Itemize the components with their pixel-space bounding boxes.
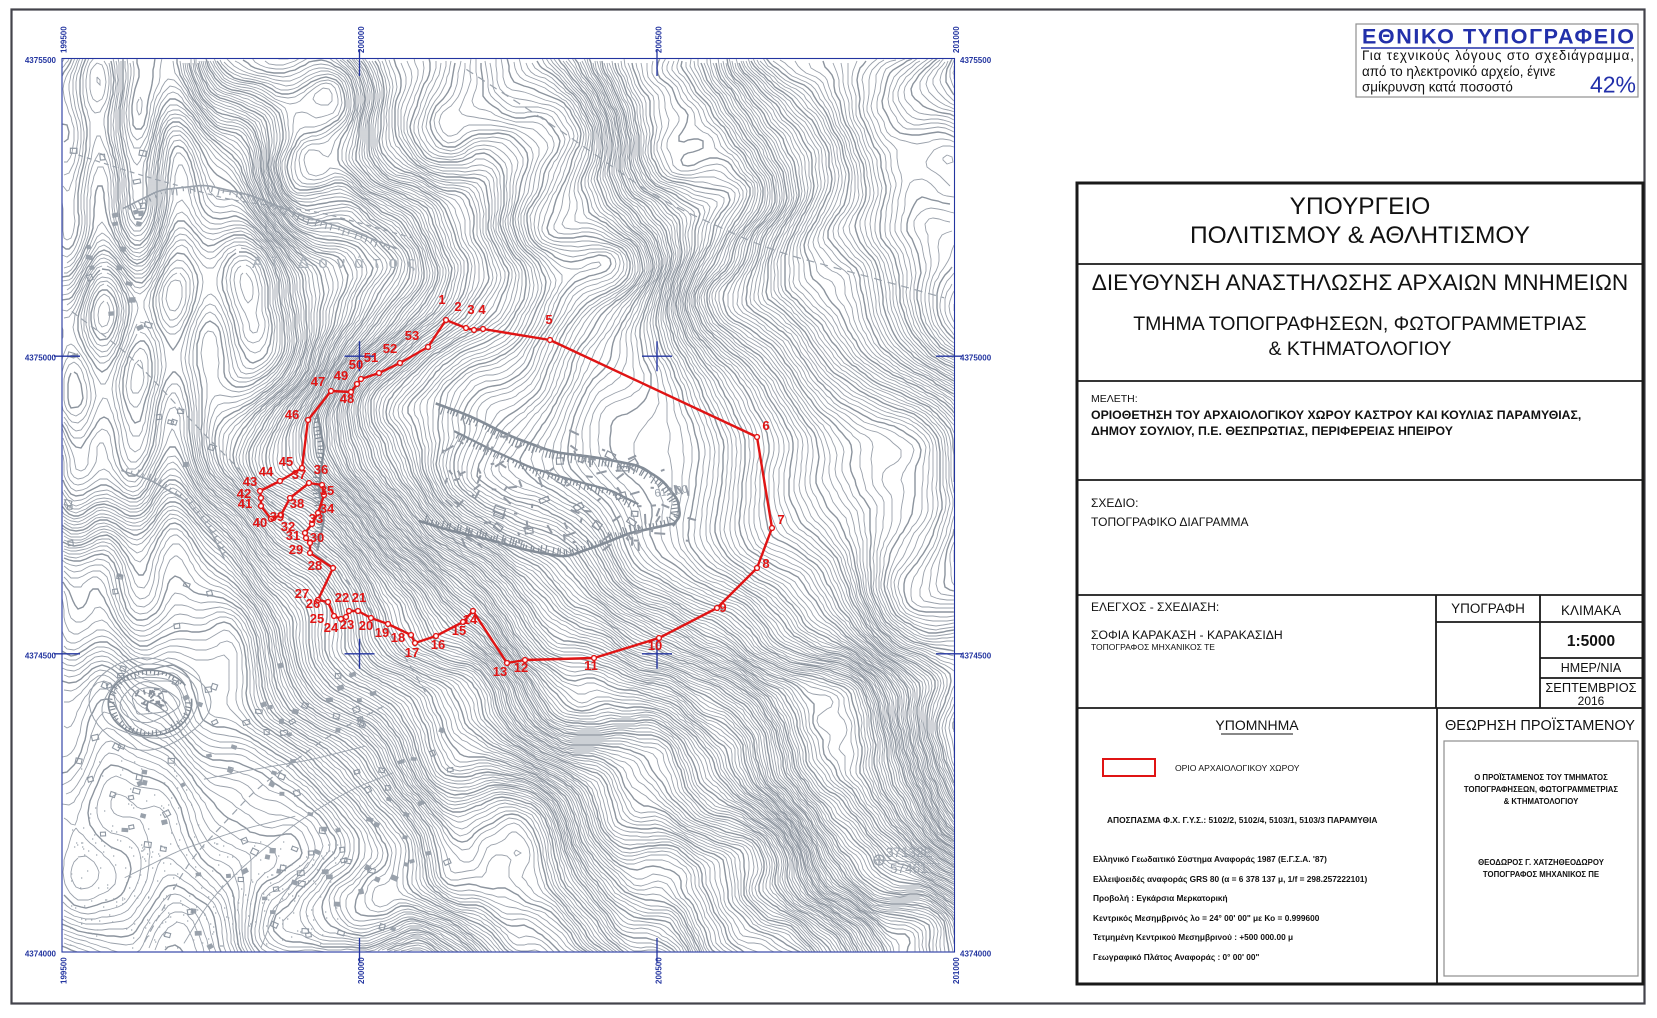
svg-text:1:5000: 1:5000	[1567, 633, 1615, 650]
svg-text:ΕΘΝΙΚΟ ΤΥΠΟΓΡΑΦΕΙΟ: ΕΘΝΙΚΟ ΤΥΠΟΓΡΑΦΕΙΟ	[1362, 25, 1634, 49]
svg-text:19: 19	[375, 625, 389, 640]
svg-text:ΜΕΛΕΤΗ:: ΜΕΛΕΤΗ:	[1091, 393, 1138, 405]
svg-text:36: 36	[314, 462, 328, 477]
svg-text:ΤΟΠΟΓΡΑΦΙΚΟ ΔΙΑΓΡΑΜΜΑ: ΤΟΠΟΓΡΑΦΙΚΟ ΔΙΑΓΡΑΜΜΑ	[1091, 515, 1248, 529]
svg-text:43: 43	[243, 474, 257, 489]
svg-text:ΤΟΠΟΓΡΑΦΗΣΕΩΝ, ΦΩΤΟΓΡΑΜΜΕΤΡΙΑΣ: ΤΟΠΟΓΡΑΦΗΣΕΩΝ, ΦΩΤΟΓΡΑΜΜΕΤΡΙΑΣ	[1464, 785, 1618, 794]
svg-text:Κεντρικός Μεσημβρινός λο = 24°: Κεντρικός Μεσημβρινός λο = 24° 00' 00" μ…	[1093, 913, 1320, 923]
svg-text:Ελλειψοειδές αναφοράς GRS 80 (: Ελλειψοειδές αναφοράς GRS 80 (α = 6 378 …	[1093, 874, 1367, 884]
svg-text:ΤΟΠΟΓΡΑΦΟΣ ΜΗΧΑΝΙΚΟΣ ΠΕ: ΤΟΠΟΓΡΑΦΟΣ ΜΗΧΑΝΙΚΟΣ ΠΕ	[1483, 870, 1599, 879]
svg-text:29: 29	[289, 542, 303, 557]
svg-text:40: 40	[253, 515, 267, 530]
svg-text:4374000: 4374000	[960, 950, 992, 959]
svg-text:ΔΗΜΟΥ ΣΟΥΛΙΟΥ, Π.Ε. ΘΕΣΠΡΩΤΙΑΣ: ΔΗΜΟΥ ΣΟΥΛΙΟΥ, Π.Ε. ΘΕΣΠΡΩΤΙΑΣ, ΠΕΡΙΦΕΡΕ…	[1091, 424, 1453, 438]
svg-text:199500: 199500	[60, 26, 69, 53]
svg-text:ΤΟΠΟΓΡΑΦΟΣ ΜΗΧΑΝΙΚΟΣ ΤΕ: ΤΟΠΟΓΡΑΦΟΣ ΜΗΧΑΝΙΚΟΣ ΤΕ	[1091, 642, 1215, 652]
svg-text:9: 9	[719, 600, 726, 615]
svg-text:Γεωγραφικό Πλάτος Αναφοράς : 0: Γεωγραφικό Πλάτος Αναφοράς : 0° 00' 00"	[1093, 952, 1259, 962]
svg-text:ΥΠΟΜΝΗΜΑ: ΥΠΟΜΝΗΜΑ	[1215, 717, 1299, 733]
svg-text:20: 20	[359, 618, 373, 633]
svg-text:ΟΡΙΟΘΕΤΗΣΗ ΤΟΥ ΑΡΧΑΙΟΛΟΓΙΚΟΥ Χ: ΟΡΙΟΘΕΤΗΣΗ ΤΟΥ ΑΡΧΑΙΟΛΟΓΙΚΟΥ ΧΩΡΟΥ ΚΑΣΤΡ…	[1091, 408, 1581, 422]
svg-text:4: 4	[478, 302, 486, 317]
svg-text:35: 35	[320, 483, 334, 498]
svg-text:11: 11	[584, 658, 598, 673]
svg-text:38: 38	[290, 496, 304, 511]
svg-text:4374000: 4374000	[25, 950, 57, 959]
svg-text:17: 17	[405, 645, 419, 660]
svg-text:ΘΕΟΔΩΡΟΣ Γ. ΧΑΤΖΗΘΕΟΔΩΡΟΥ: ΘΕΟΔΩΡΟΣ Γ. ΧΑΤΖΗΘΕΟΔΩΡΟΥ	[1478, 858, 1605, 867]
svg-text:4375000: 4375000	[960, 354, 992, 363]
svg-text:200000: 200000	[357, 26, 366, 53]
svg-text:39: 39	[270, 509, 284, 524]
svg-text:57461: 57461	[890, 861, 928, 876]
svg-text:48: 48	[340, 391, 354, 406]
svg-text:ΣΧΕΔΙΟ:: ΣΧΕΔΙΟ:	[1091, 496, 1138, 510]
svg-text:& ΚΤΗΜΑΤΟΛΟΓΙΟΥ: & ΚΤΗΜΑΤΟΛΟΓΙΟΥ	[1504, 797, 1580, 806]
svg-text:30: 30	[310, 530, 324, 545]
svg-text:200500: 200500	[655, 957, 664, 984]
svg-text:6: 6	[762, 418, 769, 433]
svg-text:46: 46	[285, 407, 299, 422]
svg-text:Ελληνικό Γεωδαιτικό Σύστημα Αν: Ελληνικό Γεωδαιτικό Σύστημα Αναφοράς 198…	[1093, 854, 1327, 864]
svg-text:1: 1	[438, 292, 445, 307]
svg-text:3: 3	[467, 302, 474, 317]
svg-text:ΘΕΩΡΗΣΗ ΠΡΟΪΣΤΑΜΕΝΟΥ: ΘΕΩΡΗΣΗ ΠΡΟΪΣΤΑΜΕΝΟΥ	[1445, 717, 1635, 734]
svg-text:52: 52	[383, 341, 397, 356]
svg-text:ΚΛΙΜΑΚΑ: ΚΛΙΜΑΚΑ	[1561, 603, 1621, 618]
svg-text:27: 27	[295, 586, 309, 601]
svg-text:4375000: 4375000	[25, 354, 57, 363]
svg-text:2: 2	[454, 299, 461, 314]
svg-text:ΥΠΟΓΡΑΦΗ: ΥΠΟΓΡΑΦΗ	[1451, 601, 1525, 616]
svg-text:2016: 2016	[1578, 694, 1605, 708]
svg-text:23: 23	[340, 617, 354, 632]
svg-text:Αϊ Δονάτος: Αϊ Δονάτος	[252, 253, 424, 272]
svg-text:ΗΜΕΡ/ΝΙΑ: ΗΜΕΡ/ΝΙΑ	[1561, 661, 1622, 675]
svg-text:8: 8	[762, 556, 769, 571]
svg-text:4375500: 4375500	[960, 56, 992, 65]
svg-text:13: 13	[493, 664, 507, 679]
svg-text:ΣΟΦΙΑ ΚΑΡΑΚΑΣΗ - ΚΑΡΑΚΑΣΙΔΗ: ΣΟΦΙΑ ΚΑΡΑΚΑΣΗ - ΚΑΡΑΚΑΣΙΔΗ	[1091, 628, 1283, 642]
svg-text:28: 28	[308, 558, 322, 573]
svg-text:4374500: 4374500	[960, 651, 992, 660]
svg-text:ΠΟΛΙΤΙΣΜΟΥ & ΑΘΛΗΤΙΣΜΟΥ: ΠΟΛΙΤΙΣΜΟΥ & ΑΘΛΗΤΙΣΜΟΥ	[1190, 222, 1530, 249]
svg-text:47: 47	[311, 374, 325, 389]
svg-text:200000: 200000	[357, 957, 366, 984]
svg-text:45: 45	[279, 454, 293, 469]
svg-text:199500: 199500	[60, 957, 69, 984]
svg-text:σμίκρυνση κατά ποσοστό: σμίκρυνση κατά ποσοστό	[1362, 80, 1513, 95]
svg-text:42%: 42%	[1590, 72, 1636, 98]
svg-text:ΣΕΠΤΕΜΒΡΙΟΣ: ΣΕΠΤΕΜΒΡΙΟΣ	[1545, 680, 1636, 695]
svg-text:ΤΜΗΜΑ ΤΟΠΟΓΡΑΦΗΣΕΩΝ, ΦΩΤΟΓΡΑΜΜ: ΤΜΗΜΑ ΤΟΠΟΓΡΑΦΗΣΕΩΝ, ΦΩΤΟΓΡΑΜΜΕΤΡΙΑΣ	[1133, 313, 1586, 335]
svg-text:18: 18	[391, 630, 405, 645]
svg-text:50: 50	[349, 357, 363, 372]
svg-text:Για τεχνικούς λόγους στο σχεδι: Για τεχνικούς λόγους στο σχεδιάγραμμα,	[1362, 48, 1634, 63]
svg-text:24: 24	[324, 620, 339, 635]
svg-text:ΥΠΟΥΡΓΕΙΟ: ΥΠΟΥΡΓΕΙΟ	[1290, 193, 1431, 220]
svg-text:12: 12	[514, 660, 528, 675]
svg-text:25: 25	[310, 611, 324, 626]
svg-text:4375500: 4375500	[25, 56, 57, 65]
svg-text:7: 7	[777, 512, 784, 527]
svg-text:& ΚΤΗΜΑΤΟΛΟΓΙΟΥ: & ΚΤΗΜΑΤΟΛΟΓΙΟΥ	[1268, 338, 1451, 360]
svg-text:53: 53	[405, 328, 419, 343]
svg-text:ΑΠΟΣΠΑΣΜΑ Φ.Χ. Γ.Υ.Σ.: 5102/2: ΑΠΟΣΠΑΣΜΑ Φ.Χ. Γ.Υ.Σ.: 5102/2, 5102/4, 5…	[1107, 815, 1377, 825]
svg-text:ΔΙΕΥΘΥΝΣΗ ΑΝΑΣΤΗΛΩΣΗΣ ΑΡΧΑΙΩΝ: ΔΙΕΥΘΥΝΣΗ ΑΝΑΣΤΗΛΩΣΗΣ ΑΡΧΑΙΩΝ ΜΝΗΜΕΙΩΝ	[1092, 270, 1628, 295]
svg-text:201000: 201000	[952, 957, 961, 984]
svg-text:4374500: 4374500	[25, 651, 57, 660]
svg-text:201000: 201000	[952, 26, 961, 53]
svg-text:ΕΛΕΓΧΟΣ - ΣΧΕΔΙΑΣΗ:: ΕΛΕΓΧΟΣ - ΣΧΕΔΙΑΣΗ:	[1091, 600, 1219, 614]
svg-text:51: 51	[364, 350, 378, 365]
svg-text:37: 37	[292, 467, 306, 482]
svg-text:44: 44	[259, 464, 274, 479]
svg-text:200500: 200500	[655, 26, 664, 53]
svg-text:ΟΡΙΟ ΑΡΧΑΙΟΛΟΓΙΚΟΥ ΧΩΡΟΥ: ΟΡΙΟ ΑΡΧΑΙΟΛΟΓΙΚΟΥ ΧΩΡΟΥ	[1175, 763, 1300, 773]
svg-text:10: 10	[648, 638, 662, 653]
svg-text:Τετμημένη Κεντρικού Μεσημβρινο: Τετμημένη Κεντρικού Μεσημβρινού : +500 0…	[1093, 932, 1293, 942]
svg-text:49: 49	[334, 368, 348, 383]
svg-text:5: 5	[545, 312, 552, 327]
svg-text:37132Ε: 37132Ε	[886, 845, 933, 860]
svg-text:Ο ΠΡΟΪΣΤΑΜΕΝΟΣ ΤΟΥ ΤΜΗΜΑΤΟΣ: Ο ΠΡΟΪΣΤΑΜΕΝΟΣ ΤΟΥ ΤΜΗΜΑΤΟΣ	[1474, 773, 1608, 782]
svg-text:34: 34	[320, 501, 335, 516]
svg-text:21: 21	[352, 590, 366, 605]
svg-text:από το ηλεκτρονικό αρχείο, έγι: από το ηλεκτρονικό αρχείο, έγινε	[1362, 64, 1556, 79]
svg-text:15: 15	[452, 623, 466, 638]
svg-text:22: 22	[335, 590, 349, 605]
svg-text:16: 16	[431, 637, 445, 652]
svg-text:Προβολή : Εγκάρσια Μερκατορική: Προβολή : Εγκάρσια Μερκατορική	[1093, 893, 1228, 903]
